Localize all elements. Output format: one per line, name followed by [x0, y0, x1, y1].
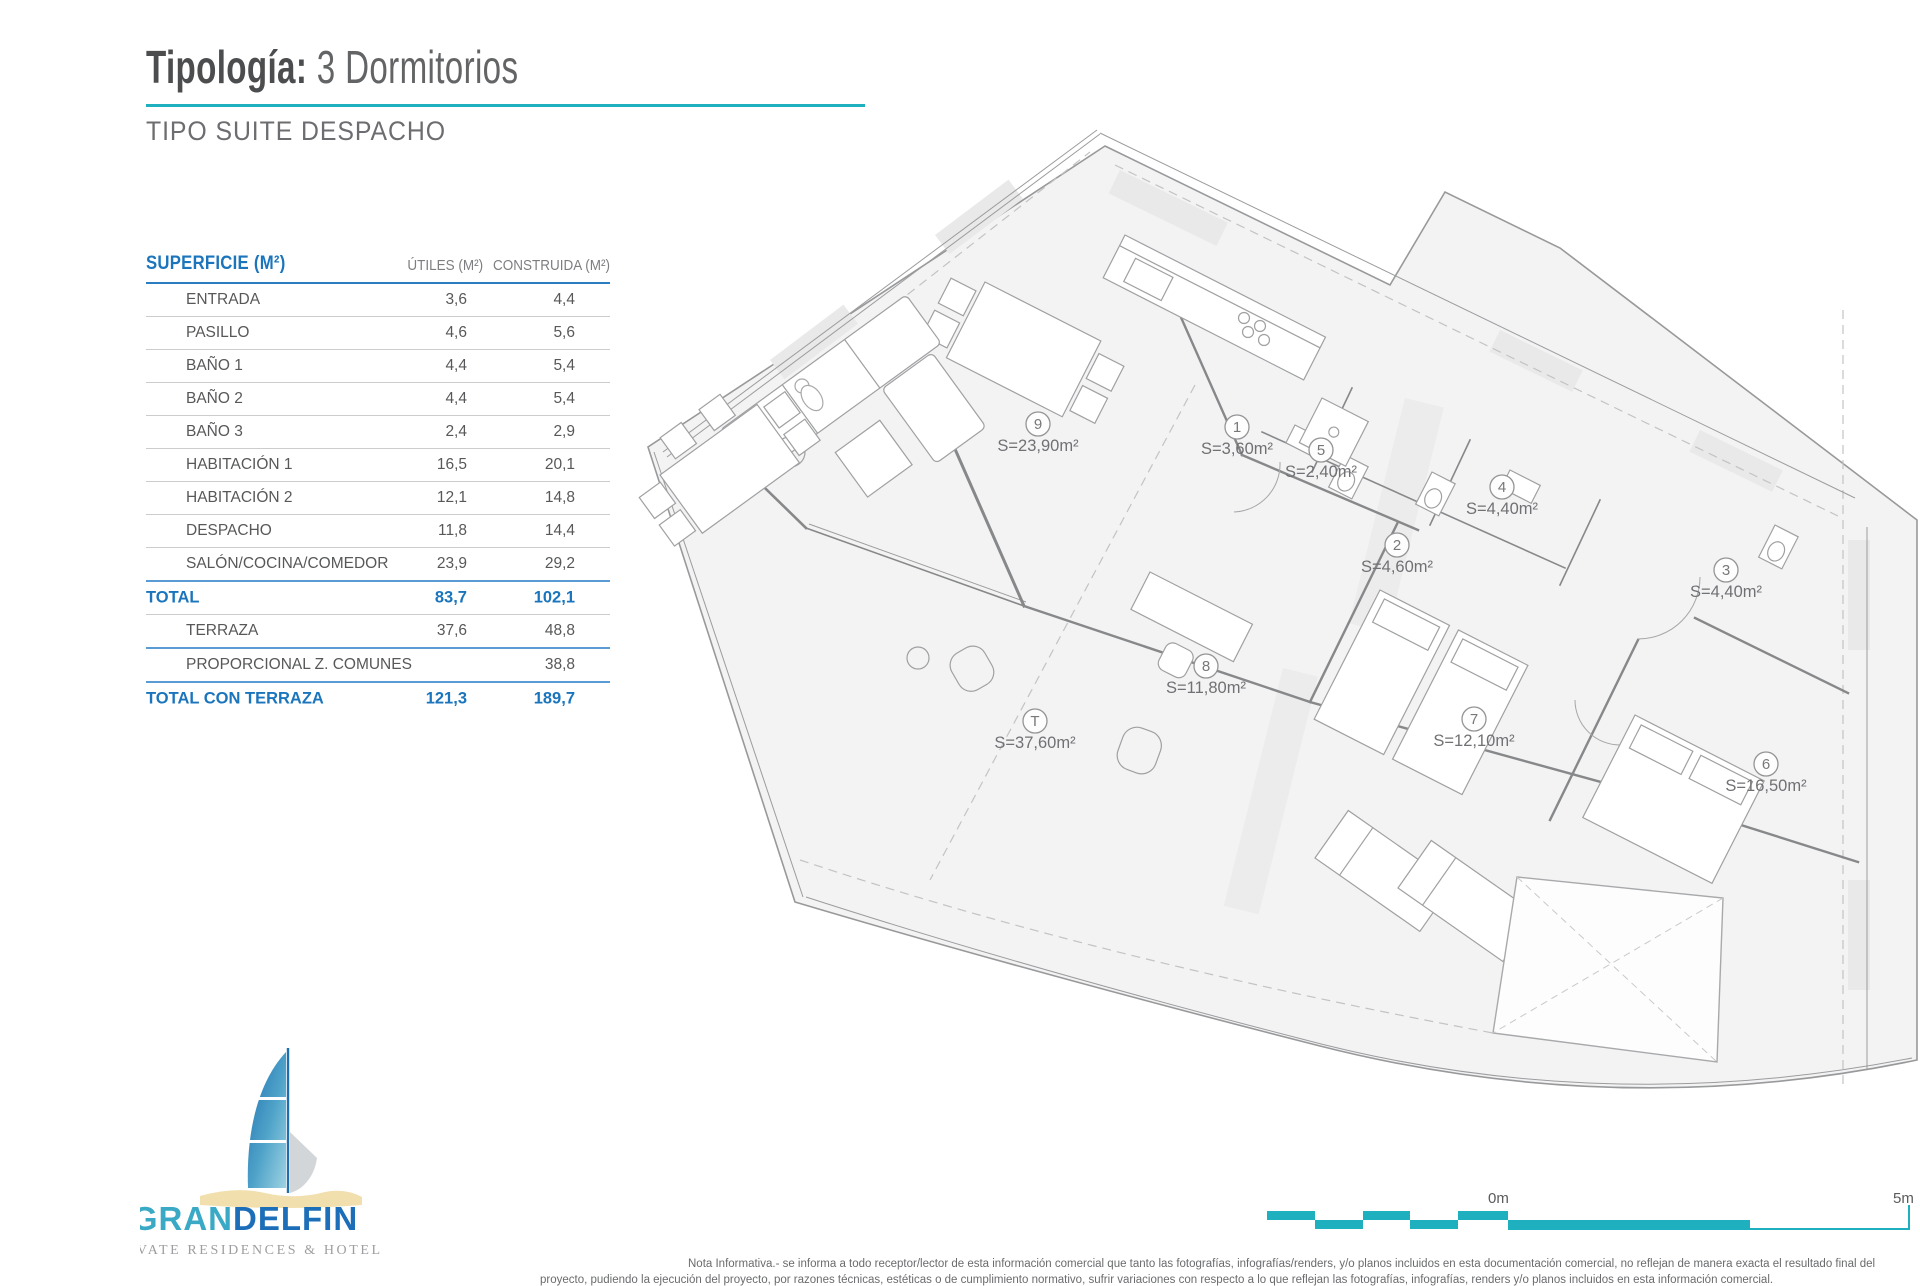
svg-text:2: 2 [1393, 537, 1401, 554]
scale-segment [1410, 1220, 1458, 1229]
scale-end-tick [1908, 1205, 1910, 1229]
scale-segment [1363, 1211, 1410, 1220]
svg-text:8: 8 [1202, 658, 1210, 675]
scale-baseline [1508, 1228, 1910, 1230]
svg-text:S=4,40m²: S=4,40m² [1690, 583, 1762, 601]
svg-text:S=11,80m²: S=11,80m² [1166, 679, 1246, 697]
svg-text:S=12,10m²: S=12,10m² [1433, 732, 1515, 750]
svg-text:S=37,60m²: S=37,60m² [994, 734, 1076, 752]
scale-start-label: 0m [1488, 1190, 1509, 1207]
legal-note-line2: proyecto, pudiendo la ejecución del proy… [540, 1274, 1773, 1286]
svg-text:S=4,60m²: S=4,60m² [1361, 558, 1433, 576]
svg-text:S=16,50m²: S=16,50m² [1725, 777, 1807, 795]
svg-text:9: 9 [1034, 416, 1042, 433]
svg-text:4: 4 [1498, 479, 1506, 496]
brand-tagline: PRIVATE RESIDENCES & HOTEL [140, 1243, 383, 1258]
brand-name: GRANDELFIN [140, 1200, 358, 1237]
scale-segment [1458, 1211, 1508, 1220]
sail-tower-icon [200, 1048, 362, 1208]
svg-text:3: 3 [1722, 562, 1730, 579]
svg-text:S=4,40m²: S=4,40m² [1466, 500, 1538, 518]
svg-text:1: 1 [1233, 419, 1241, 436]
svg-text:T: T [1030, 713, 1039, 730]
svg-text:S=2,40m²: S=2,40m² [1285, 463, 1357, 481]
skylight-box [1493, 877, 1723, 1062]
svg-text:S=3,60m²: S=3,60m² [1201, 440, 1273, 458]
svg-text:6: 6 [1762, 756, 1770, 773]
svg-text:7: 7 [1470, 711, 1478, 728]
scale-segment [1267, 1211, 1315, 1220]
brand-logo: GRANDELFIN PRIVATE RESIDENCES & HOTEL [140, 1040, 440, 1280]
legal-note-line1: Nota Informativa.- se informa a todo rec… [688, 1258, 1875, 1270]
svg-text:5: 5 [1317, 442, 1325, 459]
scale-segment [1315, 1220, 1363, 1229]
scale-end-label: 5m [1893, 1190, 1914, 1207]
plan-outline [648, 146, 1917, 1088]
svg-text:S=23,90m²: S=23,90m² [997, 437, 1079, 455]
